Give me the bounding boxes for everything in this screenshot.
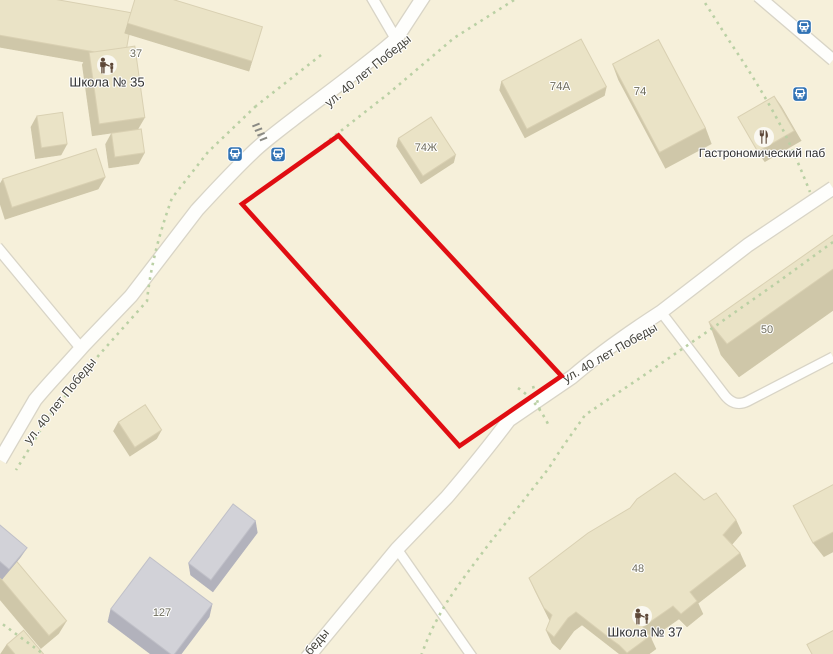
svg-text:50: 50 (761, 324, 773, 336)
svg-text:37: 37 (130, 48, 142, 60)
svg-text:48: 48 (632, 563, 644, 575)
svg-text:Школа № 37: Школа № 37 (607, 625, 682, 640)
svg-text:74Ж: 74Ж (415, 142, 437, 154)
svg-text:74А: 74А (550, 81, 571, 93)
svg-text:74: 74 (634, 86, 647, 98)
svg-text:Школа № 35: Школа № 35 (69, 75, 144, 90)
svg-text:Гастрономический паб: Гастрономический паб (699, 146, 826, 160)
svg-text:127: 127 (153, 607, 171, 619)
